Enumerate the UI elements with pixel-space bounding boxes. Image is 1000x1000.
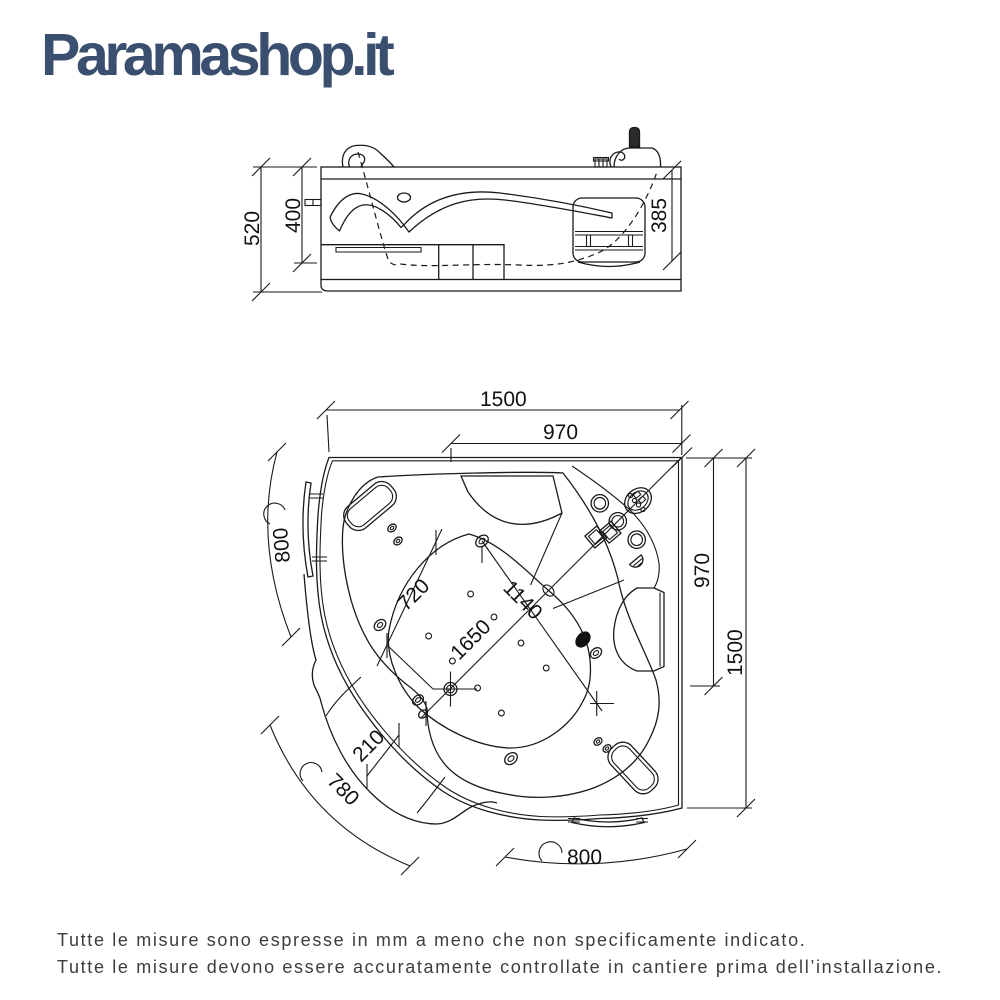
svg-text:210: 210: [348, 725, 389, 766]
svg-text:780: 780: [322, 769, 363, 810]
svg-text:720: 720: [393, 574, 434, 615]
svg-text:1140: 1140: [498, 576, 546, 624]
svg-text:800: 800: [567, 846, 602, 869]
svg-text:1500: 1500: [480, 388, 527, 411]
svg-text:1650: 1650: [446, 615, 495, 664]
svg-text:1500: 1500: [724, 629, 747, 676]
svg-text:970: 970: [543, 421, 578, 444]
svg-text:800: 800: [269, 527, 295, 564]
svg-text:970: 970: [691, 553, 714, 588]
